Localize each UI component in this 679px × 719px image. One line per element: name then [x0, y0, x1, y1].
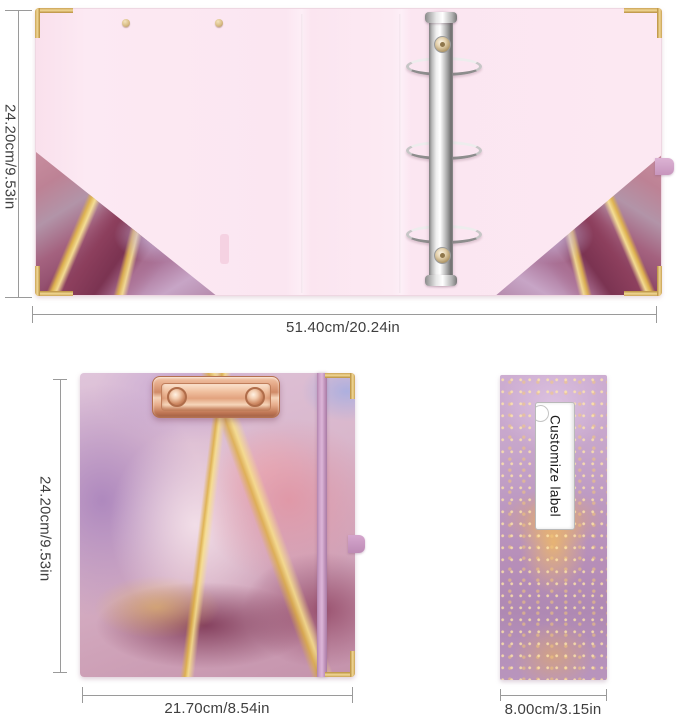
- clipboard-pen-loop-tab: [348, 535, 365, 553]
- spine-width-dimension-label: 8.00cm/3.15in: [433, 702, 673, 719]
- clipboard-gold-corner-bottom-right: [325, 651, 355, 677]
- binder-width-dimension-tick-right: [656, 306, 657, 323]
- clip-screw-right: [245, 387, 265, 407]
- clipboard-marble-cover: [80, 373, 355, 677]
- spine-width-dimension-tick-left: [500, 689, 501, 701]
- clipboard-height-dimension-cap-top: [53, 379, 67, 380]
- binder-width-dimension-label: 51.40cm/20.24in: [223, 320, 463, 337]
- binder-pen-loop-tab: [655, 158, 674, 175]
- ring-screw-top: [434, 36, 451, 53]
- clipboard-width-dimension-line: [82, 695, 353, 696]
- spine-width-dimension-line: [500, 695, 607, 696]
- clipboard-elastic-band: [317, 373, 327, 677]
- clipboard-front: [80, 373, 355, 677]
- product-dimensions-image: 24.20cm/9.53in: [0, 0, 679, 719]
- ring-mechanism-cap-top: [425, 12, 457, 23]
- clipboard-width-dimension-tick-right: [352, 687, 353, 703]
- open-binder: [35, 8, 662, 296]
- customize-label-holder: Customize label: [535, 402, 575, 530]
- clipboard-width-dimension-label: 21.70cm/8.54in: [97, 701, 337, 718]
- gold-corner-top-left: [35, 8, 73, 38]
- gold-corner-top-right: [624, 8, 662, 38]
- binder-width-dimension-tick-left: [32, 306, 33, 323]
- spine-width-dimension-tick-right: [606, 689, 607, 701]
- clip-rivet-left: [122, 19, 130, 27]
- clip-rivet-right: [215, 19, 223, 27]
- binder-width-dimension-line: [32, 314, 657, 315]
- clipboard-clip: [152, 376, 280, 418]
- clipboard-width-dimension-tick-left: [82, 687, 83, 703]
- interior-pen-loop: [220, 234, 229, 264]
- binder-fold-left: [301, 14, 303, 293]
- ring-mechanism-cap-bottom: [425, 275, 457, 286]
- clip-screw-left: [167, 387, 187, 407]
- customize-label-text: Customize label: [548, 415, 563, 517]
- clipboard-gold-corner-top-right: [325, 373, 355, 399]
- ring-mechanism-bar: [429, 13, 453, 285]
- gold-corner-bottom-right: [624, 266, 662, 296]
- binder-height-dimension-label: 24.20cm/9.53in: [1, 104, 18, 209]
- binder-spine: Customize label: [500, 375, 607, 680]
- clipboard-height-dimension-cap-bottom: [53, 672, 67, 673]
- binder-height-dimension-cap-top: [5, 10, 32, 11]
- binder-interior: [35, 8, 662, 296]
- binder-fold-right: [399, 14, 401, 293]
- clipboard-height-dimension-label: 24.20cm/9.53in: [36, 476, 53, 581]
- clipboard-front-figure: 24.20cm/9.53in 21.70cm/8.54in: [0, 350, 470, 719]
- spine-figure: Customize label 8.00cm/3.15in: [430, 350, 679, 719]
- gold-corner-bottom-left: [35, 266, 73, 296]
- clipboard-height-dimension-line: [60, 379, 61, 672]
- open-binder-figure: 24.20cm/9.53in: [0, 0, 679, 350]
- binder-height-dimension-cap-bottom: [5, 297, 32, 298]
- ring-screw-bottom: [434, 247, 451, 264]
